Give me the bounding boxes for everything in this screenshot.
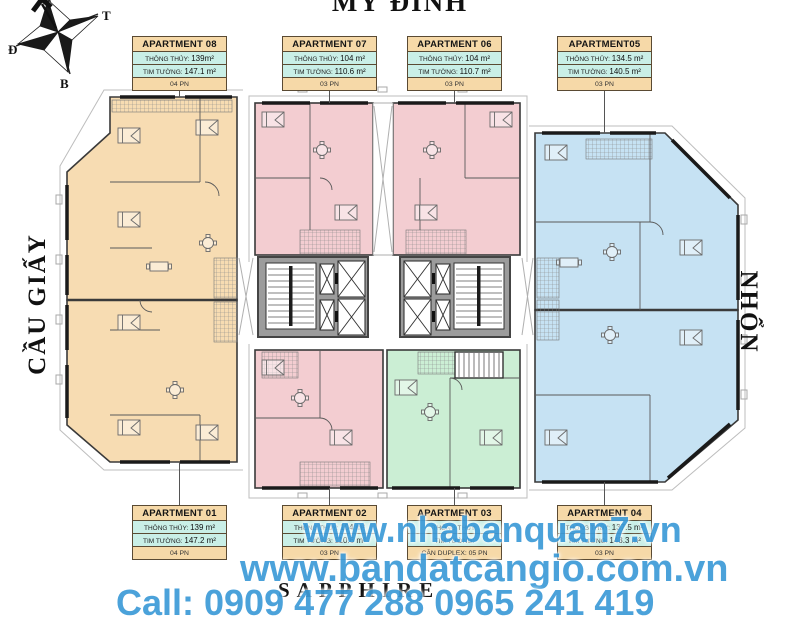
area-row: THÔNG THỦY: 134.5 m² (558, 52, 651, 65)
area-row: THÔNG THỦY: 139 m² (133, 521, 226, 534)
core-right (400, 257, 510, 337)
page-title: MỸ ĐÌNH (0, 0, 800, 18)
apartment-name: APARTMENT 01 (133, 506, 226, 521)
leader-line (604, 482, 605, 505)
apartment-card-01: APARTMENT 01 THÔNG THỦY: 139 m² TIM TƯỜN… (132, 505, 227, 560)
compass-label-east: Đ (8, 42, 17, 57)
bedroom-count: 04 PN (133, 547, 226, 559)
leader-line (604, 88, 605, 133)
bedroom-count: 04 PN (133, 78, 226, 90)
apartment-card-07: APARTMENT 07 THÔNG THỦY: 104 m² TIM TƯỜN… (282, 36, 377, 91)
bedroom-count: 03 PN (558, 78, 651, 90)
watermark-url-1: www.nhabanquan7.vn (303, 509, 682, 551)
bedroom-count: 03 PN (283, 78, 376, 90)
area-row: TIM TƯỜNG: 147.1 m² (133, 65, 226, 78)
apartment-name: APARTMENT05 (558, 37, 651, 52)
area-row: THÔNG THỦY: 104 m² (408, 52, 501, 65)
core-left (258, 257, 368, 337)
area-row: TIM TƯỜNG: 140.5 m² (558, 65, 651, 78)
apartment-card-05: APARTMENT05 THÔNG THỦY: 134.5 m² TIM TƯỜ… (557, 36, 652, 91)
apartment-card-08: APARTMENT 08 THÔNG THỦY: 139m² TIM TƯỜNG… (132, 36, 227, 91)
apartment-name: APARTMENT 08 (133, 37, 226, 52)
compass-label-north: B (60, 76, 69, 91)
area-row: TIM TƯỜNG: 110.6 m² (283, 65, 376, 78)
apartment-card-06: APARTMENT 06 THÔNG THỦY: 104 m² TIM TƯỜN… (407, 36, 502, 91)
apartment-name: APARTMENT 07 (283, 37, 376, 52)
side-label-nhon: NHỔN (734, 212, 762, 412)
apartment-name: APARTMENT 06 (408, 37, 501, 52)
area-row: THÔNG THỦY: 139m² (133, 52, 226, 65)
side-label-cau-giay: CẦU GIẤY (24, 204, 52, 404)
unit-apartment-04 (535, 310, 738, 482)
leader-line (179, 462, 180, 505)
leader-line (454, 488, 455, 505)
watermark-phone: Call: 0909 477 288 0965 241 419 (116, 582, 654, 624)
floorplan-page: { "title": "MỸ ĐÌNH", "side_labels": { "… (0, 0, 800, 600)
area-row: TIM TƯỜNG: 147.2 m² (133, 534, 226, 547)
area-row: THÔNG THỦY: 104 m² (283, 52, 376, 65)
area-row: TIM TƯỜNG: 110.7 m² (408, 65, 501, 78)
leader-line (329, 488, 330, 505)
bedroom-count: 03 PN (408, 78, 501, 90)
duplex-stairs-icon (455, 352, 503, 378)
